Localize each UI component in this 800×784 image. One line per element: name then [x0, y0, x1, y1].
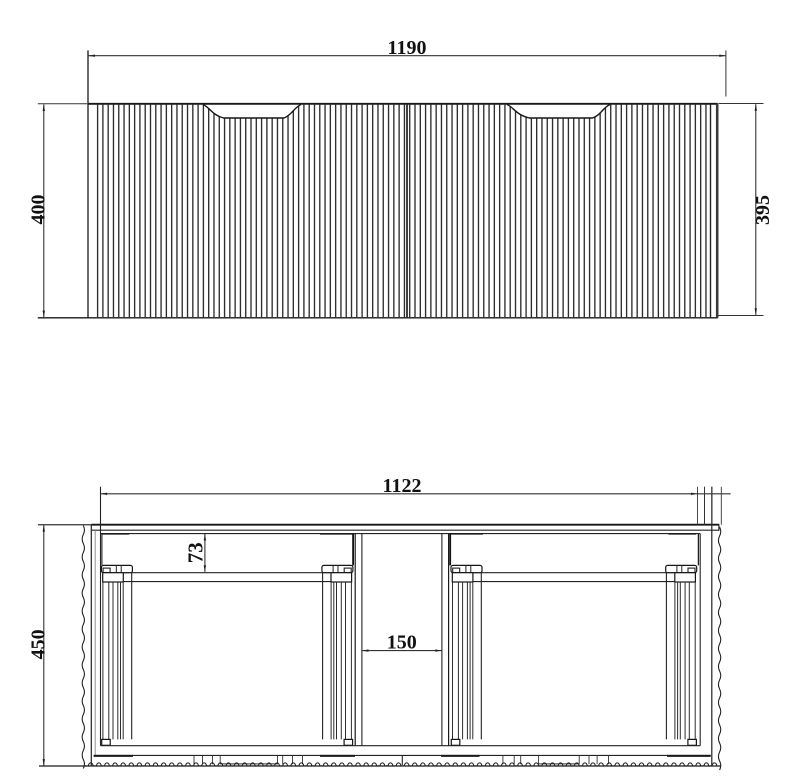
svg-text:450: 450 [27, 629, 49, 659]
svg-text:150: 150 [387, 632, 417, 654]
svg-text:1190: 1190 [388, 37, 427, 59]
svg-text:400: 400 [28, 195, 50, 225]
svg-text:395: 395 [752, 195, 774, 225]
svg-text:73: 73 [184, 542, 208, 563]
svg-text:1122: 1122 [383, 475, 422, 497]
